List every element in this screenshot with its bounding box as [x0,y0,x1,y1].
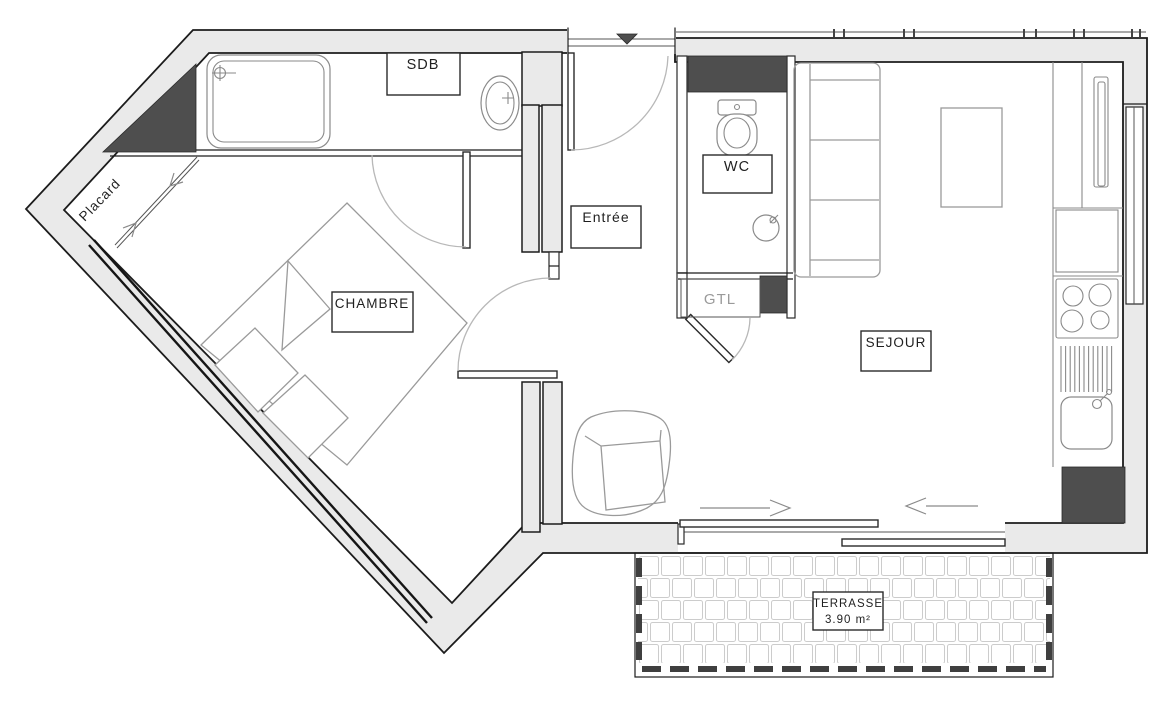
burner-icon [1061,310,1083,332]
coffee-table [941,108,1002,207]
toilet-bowl [717,114,757,156]
kitchen-sink [1061,397,1112,449]
chambre-door-leaf [458,371,557,378]
radiator [1094,77,1108,187]
sliding-panel [842,539,1005,546]
wc-door-leaf [686,314,734,362]
roof-ticks [834,29,1140,37]
radiator-inner [1098,82,1105,186]
slide-arrow-right-icon [770,500,790,516]
chambre-label: CHAMBRE [335,296,410,311]
bathroom-fixtures [207,55,519,148]
sejour-label: SEJOUR [866,335,927,350]
bathtub [207,55,330,148]
burner-icon [1089,284,1111,306]
sliding-bay [678,498,1005,553]
wc-handbasin [753,215,779,241]
kitchen [1053,62,1123,467]
floor-plan-page: SDB CHAMBRE Entrée WC SEJOUR GTL TERRASS… [0,0,1176,719]
wall-chambre-sejour-left [522,382,540,532]
sofa [794,63,880,277]
armchair [572,411,670,516]
gtl-left-jamb [677,273,687,318]
burner-icon [1091,311,1109,329]
armchair-seat [585,430,665,510]
chambre-door-arc [458,278,551,371]
entrance-door-leaf [568,53,574,150]
wc-door-arc [732,318,750,360]
wall-chambre-sejour-right [543,382,562,524]
sdb-label: SDB [407,57,440,73]
bed-fold [282,261,330,350]
sdb-door-leaf [463,152,470,248]
sdb-door-arc [372,155,466,247]
entrance-door-arc [571,56,668,150]
terrasse-label: TERRASSE [813,598,883,610]
entrance-door [567,28,676,151]
floor-plan: SDB CHAMBRE Entrée WC SEJOUR GTL TERRASS… [0,0,1176,719]
sofa-cushions [810,64,879,276]
shaft-kitchen [1062,467,1125,523]
entrance-opening [567,28,676,55]
placard-sliding-front [115,157,199,248]
slide-arrow-left-icon [906,498,926,514]
gtl-label: GTL [704,291,736,308]
drainer [1061,346,1112,392]
placard-closet [115,157,199,248]
sliding-panel [680,520,878,527]
wall-sdb-entree-right [542,105,562,252]
terrasse-area: 3.90 m² [825,614,871,626]
entree-label: Entrée [582,209,629,225]
toilet-tank [718,100,756,115]
wall-wc-west [677,56,687,273]
kitchen-appliance [1056,210,1118,272]
burner-icon [1063,286,1083,306]
shaft-above-wc [688,56,787,92]
wall-sdb-entree-left [522,105,539,252]
shaft-beside-gtl [760,276,787,313]
wall-sdb-entree-top [522,52,562,106]
wc-label: WC [724,159,750,175]
washbasin [481,76,519,130]
